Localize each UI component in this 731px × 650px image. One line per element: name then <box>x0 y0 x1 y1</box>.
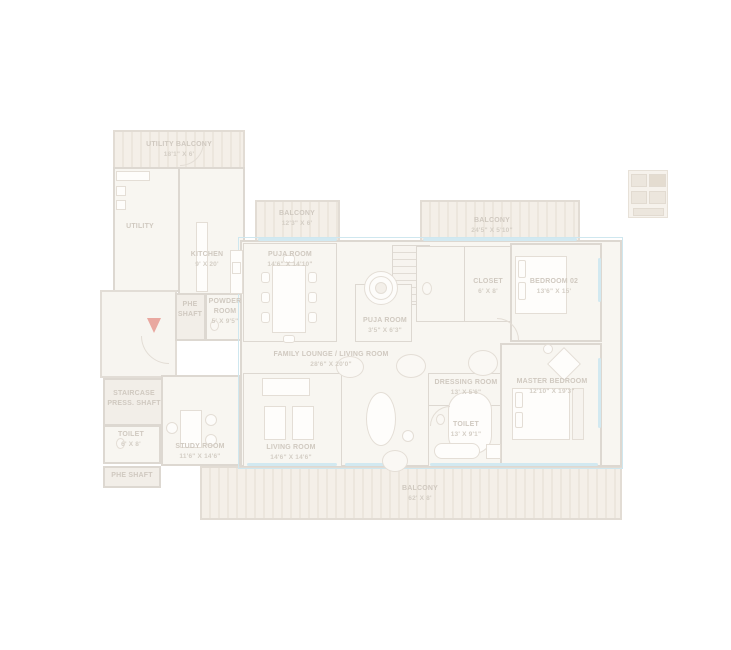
window-glass <box>598 358 601 428</box>
balcony-top-right-area <box>420 200 580 242</box>
bathtub <box>434 443 480 459</box>
key-plan-unit <box>631 174 647 187</box>
dining-chair <box>261 272 270 283</box>
phe-shaft-upper-room <box>175 293 206 341</box>
foyer-area <box>100 290 177 378</box>
study-chair <box>205 434 217 446</box>
window-glass <box>430 463 598 466</box>
dining-chair <box>308 272 317 283</box>
closet-room <box>464 246 512 322</box>
window-glass <box>247 463 337 466</box>
master-pillow <box>515 392 523 408</box>
tv-console <box>262 378 310 396</box>
toilet-common-room <box>103 425 161 464</box>
kitchen-stove <box>232 262 241 274</box>
utility-counter <box>116 171 150 181</box>
key-plan-unit <box>633 208 664 216</box>
phe-shaft-lower-room <box>103 466 161 488</box>
key-plan-unit <box>649 191 666 204</box>
dining-chair <box>261 292 270 303</box>
entry-arrow-icon <box>147 318 161 333</box>
bedroom02-pillow <box>518 282 526 300</box>
wc-fixture <box>210 320 219 331</box>
utility-appliance <box>116 200 126 210</box>
rangoli-motif-core <box>375 282 387 294</box>
master-stool <box>543 344 553 354</box>
dining-chair <box>283 335 295 343</box>
staircase-press-shaft-room <box>103 378 165 426</box>
bedroom02-pillow <box>518 260 526 278</box>
key-plan-unit-highlighted <box>649 174 666 187</box>
floor-plan-canvas: UTILITY BALCONY18'1" X 6' UTILITY KITCHE… <box>0 0 731 650</box>
master-pillow <box>515 412 523 428</box>
study-table <box>180 410 202 448</box>
wc-fixture <box>116 438 125 449</box>
wc-fixture <box>422 282 432 295</box>
window-glass <box>598 258 601 302</box>
key-plan-unit <box>631 191 647 204</box>
lounge-armchair <box>468 350 498 376</box>
lounge-armchair <box>382 450 408 472</box>
dining-chair <box>261 312 270 323</box>
lounge-coffee-table <box>366 392 396 446</box>
master-runner-rug <box>572 388 584 440</box>
lounge-armchair <box>396 354 426 378</box>
dining-chair <box>308 292 317 303</box>
shower-area <box>486 444 501 459</box>
living-seat <box>292 406 314 440</box>
dining-chair <box>308 312 317 323</box>
utility-appliance <box>116 186 126 196</box>
utility-balcony-area <box>113 130 245 169</box>
kitchen-counter <box>196 222 208 292</box>
lounge-side-table <box>402 430 414 442</box>
key-plan-inset <box>628 170 668 218</box>
study-chair <box>205 414 217 426</box>
dining-table <box>272 265 306 333</box>
lounge-armchair <box>336 356 364 378</box>
balcony-top-center-area <box>255 200 340 242</box>
balcony-bottom-area <box>200 466 622 520</box>
dining-chair <box>283 255 295 263</box>
window-glass <box>423 238 577 241</box>
living-seat <box>264 406 286 440</box>
window-glass <box>258 238 337 241</box>
study-chair <box>166 422 178 434</box>
